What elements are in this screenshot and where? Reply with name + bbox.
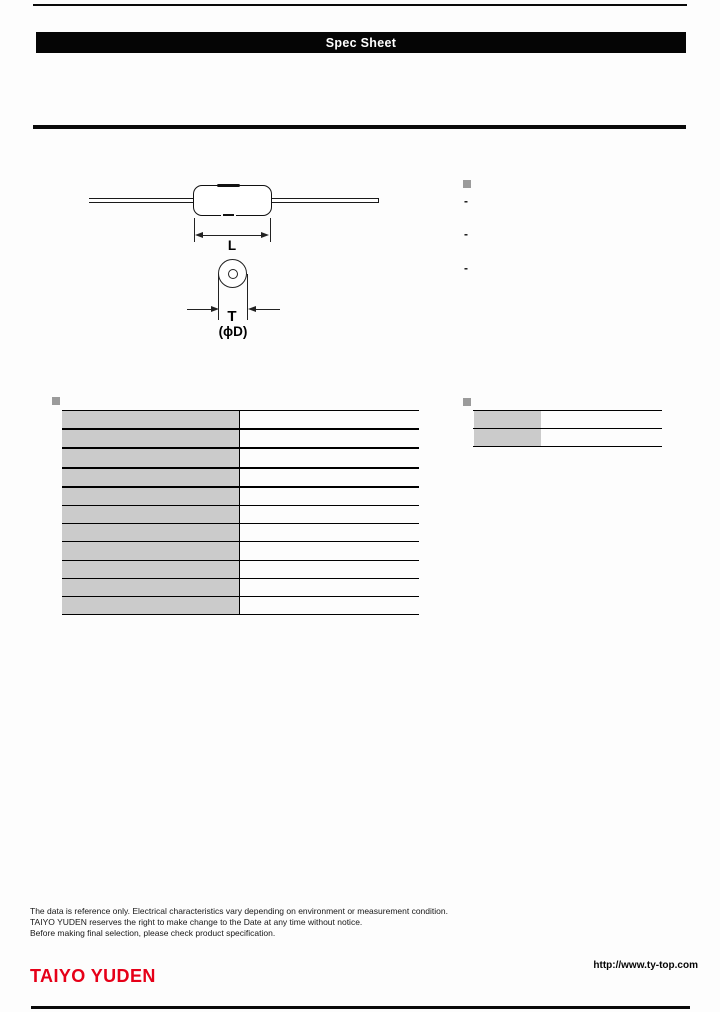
spec-table-row	[62, 430, 419, 449]
dim-thickness-line	[187, 309, 212, 310]
spec-table-row	[62, 542, 419, 560]
spec-row-header-cell	[62, 506, 240, 523]
spec-row-header-cell	[62, 488, 240, 505]
spec-row-header-cell	[62, 469, 240, 486]
website-url-link[interactable]: http://www.ty-top.com	[593, 960, 698, 971]
top-rule	[33, 4, 687, 6]
spec-row-value-cell	[240, 430, 420, 447]
dim-diameter-label: (ϕD)	[208, 324, 258, 339]
spec-table-row	[62, 488, 419, 506]
feature-dash: -	[464, 199, 474, 207]
taiyo-yuden-logo: TAIYO YUDEN	[30, 966, 156, 987]
spec-row-value-cell	[240, 488, 420, 505]
spec-row-value-cell	[240, 411, 420, 428]
bottom-rule	[31, 1006, 690, 1009]
spec-row-value-cell	[240, 561, 420, 578]
lead-wire-left	[89, 198, 195, 203]
section-bullet-icon	[52, 397, 60, 405]
arrowhead-left-icon	[248, 306, 256, 312]
spec-table-row	[62, 561, 419, 579]
spec-row-value-cell	[240, 469, 420, 486]
spec-table-row	[62, 506, 419, 524]
arrowhead-right-icon	[261, 232, 269, 238]
info-row-header-cell	[474, 411, 541, 428]
lead-wire-right	[271, 198, 379, 203]
info-table	[473, 410, 662, 447]
dim-extension-line	[247, 274, 248, 320]
disclaimer-line: TAIYO YUDEN reserves the right to make c…	[30, 917, 448, 928]
spec-table	[62, 410, 419, 615]
body-bottom-dash	[221, 214, 236, 216]
info-row-value-cell	[541, 429, 662, 446]
spec-row-header-cell	[62, 524, 240, 541]
dim-extension-line	[218, 274, 219, 320]
spec-row-value-cell	[240, 542, 420, 559]
info-row-value-cell	[541, 411, 662, 428]
disclaimer-line: The data is reference only. Electrical c…	[30, 906, 448, 917]
arrowhead-left-icon	[195, 232, 203, 238]
spec-row-value-cell	[240, 506, 420, 523]
spec-row-header-cell	[62, 597, 240, 614]
spec-row-value-cell	[240, 449, 420, 466]
spec-row-value-cell	[240, 597, 420, 614]
spec-row-value-cell	[240, 524, 420, 541]
page-title: Spec Sheet	[326, 36, 396, 50]
spec-table-row	[62, 411, 419, 430]
arrowhead-right-icon	[211, 306, 219, 312]
info-row-header-cell	[474, 429, 541, 446]
spec-sheet-page: Spec Sheet L T (ϕD) - - -	[0, 0, 720, 1012]
dim-extension-line	[194, 218, 195, 242]
spec-row-header-cell	[62, 430, 240, 447]
spec-row-header-cell	[62, 542, 240, 559]
header-rule	[33, 125, 686, 129]
dim-length-line	[200, 235, 264, 236]
spec-row-header-cell	[62, 449, 240, 466]
spec-table-row	[62, 469, 419, 488]
end-view-core-circle	[228, 269, 238, 279]
spec-table-row	[62, 597, 419, 615]
spec-row-header-cell	[62, 579, 240, 596]
feature-dash: -	[464, 232, 474, 240]
dim-thickness-label: T	[222, 308, 242, 325]
dim-length-label: L	[221, 238, 243, 253]
disclaimer-text: The data is reference only. Electrical c…	[30, 906, 448, 939]
feature-dash: -	[464, 266, 474, 274]
spec-table-row	[62, 579, 419, 597]
title-bar: Spec Sheet	[36, 32, 686, 53]
spec-row-header-cell	[62, 561, 240, 578]
info-table-row	[473, 411, 662, 429]
spec-row-header-cell	[62, 411, 240, 428]
spec-table-row	[62, 449, 419, 468]
spec-row-value-cell	[240, 579, 420, 596]
info-table-row	[473, 429, 662, 447]
section-bullet-icon	[463, 180, 471, 188]
dim-extension-line	[270, 218, 271, 242]
body-top-dash	[217, 184, 240, 187]
dim-thickness-line	[254, 309, 280, 310]
component-body	[193, 185, 272, 216]
section-bullet-icon	[463, 398, 471, 406]
spec-table-row	[62, 524, 419, 542]
disclaimer-line: Before making final selection, please ch…	[30, 928, 448, 939]
